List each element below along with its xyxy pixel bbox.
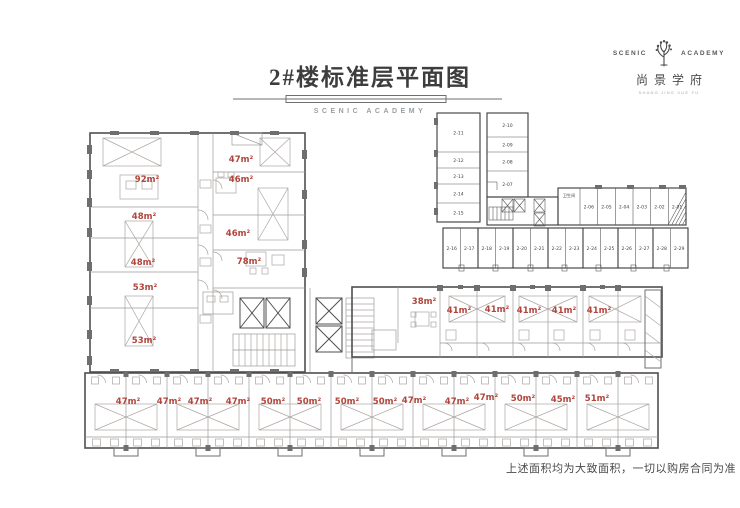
wall-pier	[302, 150, 307, 159]
door-arc	[213, 290, 222, 299]
door-arc	[517, 343, 525, 351]
wardrobe	[113, 377, 120, 384]
wardrobe	[441, 377, 448, 384]
key-tick	[659, 185, 666, 189]
key-unit-label: 2-11	[453, 131, 464, 137]
key-hatch	[679, 212, 686, 226]
door-arc	[552, 343, 560, 351]
bath-fixture	[316, 439, 324, 446]
bath-fixture	[275, 439, 283, 446]
area-label: 53m²	[133, 283, 158, 293]
bathroom	[372, 330, 396, 350]
wardrobe	[523, 377, 530, 384]
area-label: 45m²	[551, 395, 576, 405]
plan-line	[207, 296, 215, 302]
wall-pier	[452, 371, 457, 377]
wardrobe	[277, 377, 284, 384]
bath-fixture	[111, 439, 119, 446]
plan-line	[272, 255, 284, 265]
area-label: 78m²	[237, 257, 262, 267]
bath-fixture	[421, 439, 429, 446]
area-label: 38m²	[412, 297, 437, 307]
area-label: 50m²	[511, 394, 536, 404]
wardrobe	[256, 377, 263, 384]
wall-pier	[302, 268, 307, 277]
wall-pier	[616, 371, 621, 377]
key-unit-label: 2-04	[619, 205, 630, 211]
bath-fixture	[446, 330, 456, 340]
wall-pier	[580, 285, 586, 291]
bath-fixture	[521, 439, 529, 446]
plan-line	[645, 296, 661, 308]
wall-pier	[302, 240, 307, 249]
wall-pier	[270, 131, 279, 135]
wall-pier	[288, 371, 293, 377]
bath-fixture	[380, 439, 388, 446]
area-label: 47m²	[229, 155, 254, 165]
wall-pier	[615, 285, 621, 291]
area-label: 41m²	[552, 306, 577, 316]
plan-line	[431, 322, 436, 327]
area-label: 51m²	[585, 394, 610, 404]
key-unit-label: 2-18	[482, 246, 493, 252]
wall-pier	[87, 228, 92, 237]
wall-pier	[206, 371, 211, 377]
key-unit-label: 2-06	[584, 205, 595, 211]
wall-pier	[87, 356, 92, 365]
bath-fixture	[462, 439, 470, 446]
bath-fixture	[175, 439, 183, 446]
area-label: 47m²	[116, 397, 141, 407]
wall-pier	[530, 285, 535, 289]
bath-fixture	[480, 439, 488, 446]
plan-line	[431, 312, 436, 317]
wall-pier	[87, 330, 92, 339]
wardrobe	[625, 377, 632, 384]
area-label: 41m²	[517, 306, 542, 316]
key-unit-label: 2-27	[639, 246, 650, 252]
bath-fixture	[216, 439, 224, 446]
area-label: 41m²	[485, 305, 510, 315]
plan-line	[645, 350, 661, 362]
key-tick	[595, 185, 602, 189]
wardrobe	[154, 377, 161, 384]
key-unit-label: 2-26	[622, 246, 633, 252]
wall-pier	[87, 198, 92, 207]
bath-fixture	[339, 439, 347, 446]
wardrobe	[400, 377, 407, 384]
key-unit-label: 2-13	[453, 174, 464, 180]
bath-fixture	[626, 439, 634, 446]
floorplan-page: 2#楼标准层平面图 SCENIC AC	[0, 0, 740, 508]
wall-pier	[165, 371, 170, 377]
bath-fixture	[398, 439, 406, 446]
wardrobe	[338, 377, 345, 384]
table	[415, 312, 429, 326]
plan-line	[218, 172, 224, 177]
wall-pier	[87, 170, 92, 179]
area-label: 41m²	[447, 306, 472, 316]
wardrobe	[420, 377, 427, 384]
key-unit-label: 2-16	[447, 246, 458, 252]
wall-pier	[575, 371, 580, 377]
bath-fixture	[200, 315, 211, 323]
wardrobe	[605, 377, 612, 384]
area-label: 50m²	[335, 397, 360, 407]
plan-line	[250, 268, 256, 274]
wall-pier	[534, 371, 539, 377]
bath-fixture	[93, 439, 101, 446]
wall-pier	[434, 182, 438, 189]
door-arc	[587, 343, 595, 351]
key-unit-label: 2-01	[672, 205, 683, 211]
door-arc	[213, 252, 222, 261]
bath-fixture	[257, 439, 265, 446]
key-core	[487, 197, 558, 225]
bath-fixture	[590, 330, 600, 340]
bath-fixture	[544, 439, 552, 446]
wardrobe	[379, 377, 386, 384]
door-arc	[481, 343, 489, 351]
bath-fixture	[625, 330, 635, 340]
wardrobe	[236, 377, 243, 384]
bath-fixture	[439, 439, 447, 446]
wardrobe	[174, 377, 181, 384]
wardrobe	[482, 377, 489, 384]
wall-pier	[87, 262, 92, 271]
area-label: 46m²	[229, 175, 254, 185]
wall-pier	[247, 371, 252, 377]
bath-fixture	[644, 439, 652, 446]
key-unit-label: 2-10	[502, 123, 513, 129]
wall-pier	[545, 285, 551, 291]
wardrobe	[646, 377, 653, 384]
wall-pier	[437, 285, 443, 291]
area-label: 48m²	[132, 212, 157, 222]
wall-pier	[150, 131, 159, 135]
area-label: 47m²	[445, 397, 470, 407]
door-arc	[444, 343, 452, 351]
wardrobe	[133, 377, 140, 384]
floor-plan-drawing: 2-112-122-132-142-152-102-092-082-072-06…	[0, 0, 740, 508]
left-wing-outline	[90, 133, 305, 372]
bath-fixture	[503, 439, 511, 446]
bath-fixture	[200, 180, 211, 188]
key-hatch	[672, 199, 686, 226]
disclaimer-note: 上述面积均为大致面积，一切以购房合同为准	[506, 460, 736, 476]
wall-pier	[110, 131, 119, 135]
key-unit-label: 2-05	[601, 205, 612, 211]
key-unit-label: 2-23	[569, 246, 580, 252]
wall-pier	[190, 131, 199, 135]
wall-pier	[600, 285, 605, 289]
key-unit-label: 2-29	[674, 246, 685, 252]
wall-pier	[87, 145, 92, 154]
key-unit-label: 2-14	[453, 192, 464, 198]
wardrobe	[92, 377, 99, 384]
key-tick	[627, 185, 634, 189]
wall-pier	[302, 190, 307, 199]
wall-pier	[458, 285, 463, 289]
bath-fixture	[200, 225, 211, 233]
area-label: 92m²	[135, 175, 160, 185]
plan-line	[645, 314, 661, 326]
area-label: 48m²	[131, 258, 156, 268]
key-unit-label: 2-15	[453, 211, 464, 217]
area-label: 50m²	[297, 397, 322, 407]
wall-pier	[434, 118, 438, 125]
wardrobe	[584, 377, 591, 384]
bath-fixture	[234, 439, 242, 446]
key-unit-label: 2-22	[552, 246, 563, 252]
bath-fixture	[200, 258, 211, 266]
wardrobe	[297, 377, 304, 384]
door-arc	[213, 180, 222, 189]
key-unit-label: 2-02	[654, 205, 665, 211]
area-label: 50m²	[373, 397, 398, 407]
bath-fixture	[134, 439, 142, 446]
wall-pier	[493, 371, 498, 377]
key-unit-label: 2-09	[502, 143, 513, 149]
wall-pier	[329, 371, 334, 377]
wardrobe	[502, 377, 509, 384]
bath-fixture	[519, 330, 529, 340]
key-unit-label: 2-21	[534, 246, 545, 252]
plan-line	[645, 332, 661, 344]
wall-pier	[434, 208, 438, 215]
bath-fixture	[603, 439, 611, 446]
area-label: 50m²	[261, 397, 286, 407]
bath-fixture	[298, 439, 306, 446]
bath-fixture	[357, 439, 365, 446]
area-label: 47m²	[474, 393, 499, 403]
area-label: 47m²	[226, 397, 251, 407]
area-label: 47m²	[188, 397, 213, 407]
key-unit-label: 2-12	[453, 158, 464, 164]
wardrobe	[564, 377, 571, 384]
wardrobe	[318, 377, 325, 384]
key-toilet-label: 卫生间	[563, 192, 576, 199]
area-label: 41m²	[587, 306, 612, 316]
key-left-block	[437, 113, 480, 222]
area-label: 46m²	[226, 229, 251, 239]
plan-line	[262, 268, 268, 274]
wall-pier	[124, 371, 129, 377]
wall-pier	[230, 131, 239, 135]
wall-pier	[474, 285, 480, 291]
bathroom	[203, 292, 233, 314]
wardrobe	[543, 377, 550, 384]
bath-fixture	[562, 439, 570, 446]
wardrobe	[195, 377, 202, 384]
key-unit-label: 2-03	[637, 205, 648, 211]
door-arc	[198, 280, 208, 290]
key-tick	[679, 185, 686, 189]
wardrobe	[461, 377, 468, 384]
key-unit-label: 2-20	[517, 246, 528, 252]
key-unit-label: 2-08	[502, 160, 513, 166]
wall-pier	[434, 150, 438, 157]
key-unit-label: 2-25	[604, 246, 615, 252]
plan-line	[220, 296, 228, 302]
bath-fixture	[193, 439, 201, 446]
door-arc	[198, 210, 208, 220]
wardrobe	[359, 377, 366, 384]
door-arc	[198, 245, 208, 255]
area-label: 53m²	[132, 336, 157, 346]
door-arc	[622, 343, 630, 351]
bath-fixture	[152, 439, 160, 446]
area-label: 47m²	[157, 397, 182, 407]
key-unit-label: 2-07	[502, 182, 513, 188]
key-unit-label: 2-24	[587, 246, 598, 252]
key-unit-label: 2-28	[657, 246, 668, 252]
wardrobe	[215, 377, 222, 384]
key-unit-label: 2-17	[464, 246, 475, 252]
area-label: 47m²	[402, 396, 427, 406]
bath-fixture	[585, 439, 593, 446]
wall-pier	[370, 371, 375, 377]
wall-pier	[87, 296, 92, 305]
bath-fixture	[554, 330, 564, 340]
wall-pier	[411, 371, 416, 377]
key-unit-label: 2-19	[499, 246, 510, 252]
wall-pier	[510, 285, 516, 291]
